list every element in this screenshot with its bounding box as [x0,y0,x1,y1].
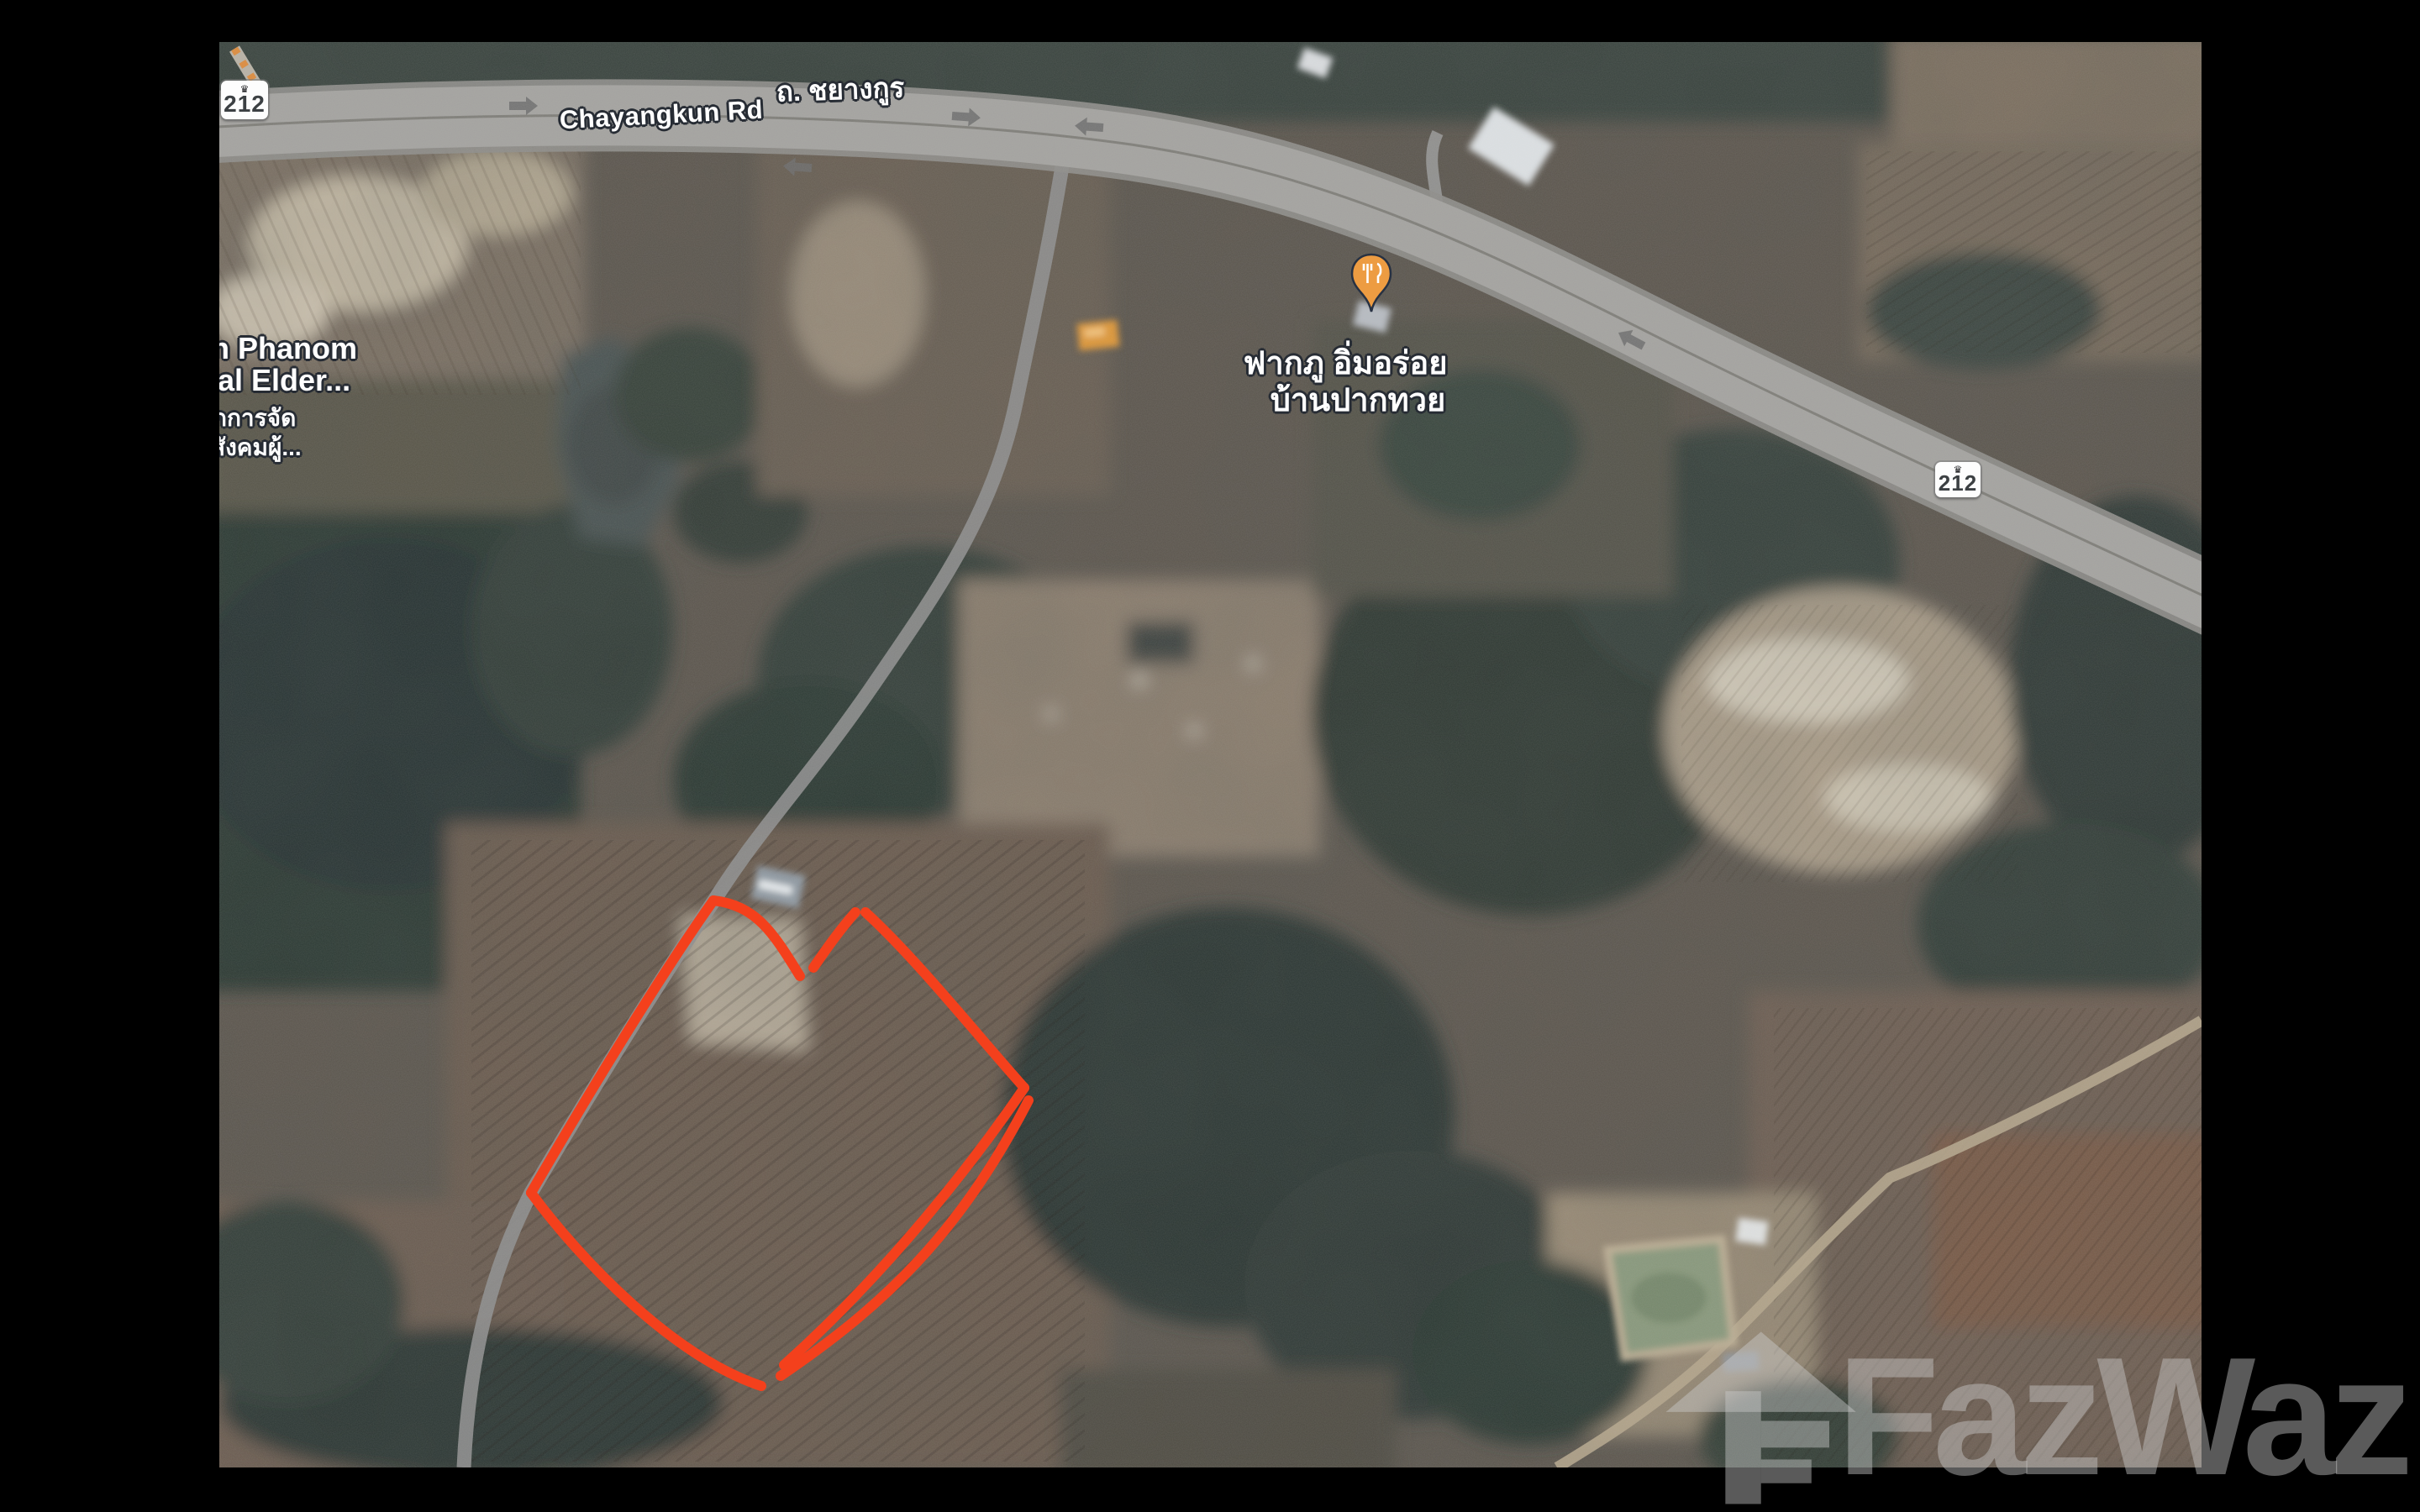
clipped-place-label-line4: สังคมผู้... [219,429,302,466]
satellite-grain [219,42,2202,1467]
route-number: 212 [224,92,266,115]
satellite-map-canvas[interactable]: ถ. ชยางกูร Chayangkun Rd ♛ 212 ♛ 212 ฟาก… [219,42,2202,1467]
clipped-place-label-line2: ial Elder... [219,363,350,398]
route-shield-212-east: ♛ 212 [1935,462,1981,497]
route-shield-212-west: ♛ 212 [221,81,268,119]
poi-label-line2[interactable]: บ้านปากทวย [1232,374,1484,425]
restaurant-pin-icon[interactable] [1349,252,1394,321]
clipped-place-label-line1: n Phanom [219,331,357,366]
restaurant-pin-body [1352,255,1391,312]
route-number: 212 [1939,473,1977,494]
satellite-imagery [219,42,2202,1467]
screenshot-frame: ถ. ชยางกูร Chayangkun Rd ♛ 212 ♛ 212 ฟาก… [0,0,2420,1512]
